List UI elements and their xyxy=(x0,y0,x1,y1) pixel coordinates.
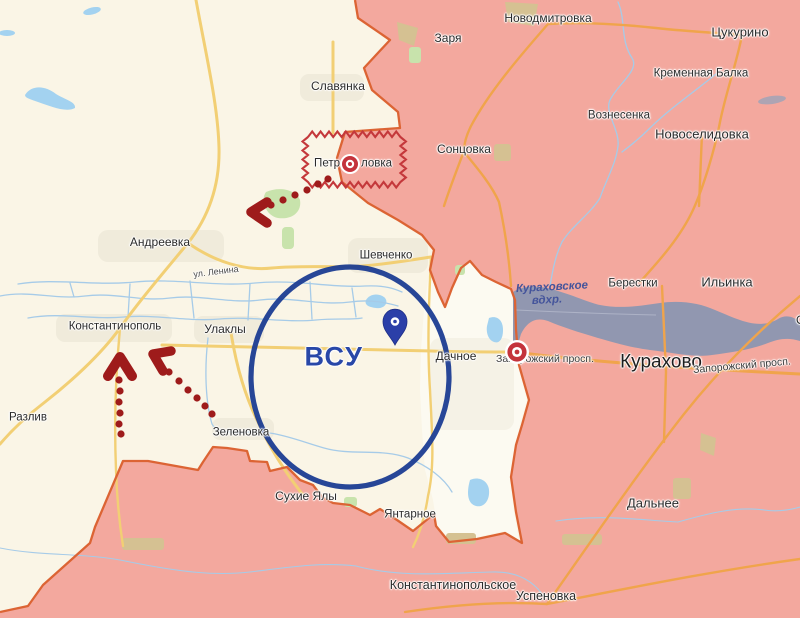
map-viewport[interactable]: СлавянкаЗаряНоводмитровкаЦукуриноКременн… xyxy=(0,0,800,618)
map-canvas xyxy=(0,0,800,618)
